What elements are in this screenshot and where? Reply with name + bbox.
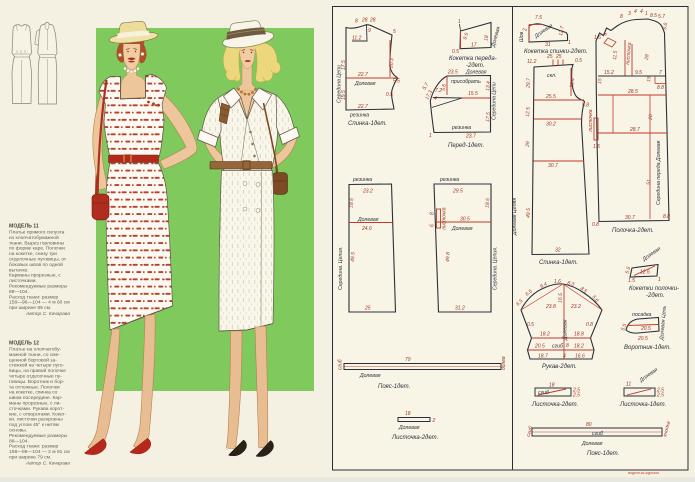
svg-text:Полочка-2дет.: Полочка-2дет.	[612, 228, 654, 234]
svg-text:158—96—104 — 2 м 91 см: 158—96—104 — 2 м 91 см	[9, 449, 70, 455]
svg-text:Долевая: Долевая	[359, 373, 381, 379]
svg-text:Воротник-1дет.: Воротник-1дет.	[624, 345, 671, 351]
svg-text:18.5: 18.5	[349, 198, 356, 208]
svg-text:15: 15	[646, 76, 652, 82]
svg-text:5.8: 5.8	[582, 103, 589, 109]
svg-text:2.5: 2.5	[656, 393, 664, 399]
svg-text:31: 31	[545, 42, 551, 48]
svg-text:28.7: 28.7	[629, 127, 640, 133]
svg-text:49.8: 49.8	[445, 252, 452, 262]
svg-text:Долевая: Долевая	[398, 425, 420, 431]
svg-text:Рекомендуемые размеры: Рекомендуемые размеры	[9, 433, 68, 439]
svg-text:сгиб: сгиб	[538, 390, 550, 396]
svg-text:Середина Цепи: Середина Цепи	[337, 65, 343, 103]
svg-text:сгиб: сгиб	[338, 359, 344, 370]
svg-text:Долевая: Долевая	[354, 81, 376, 87]
svg-text:29.7: 29.7	[525, 78, 532, 89]
svg-text:11.5: 11.5	[612, 50, 619, 60]
svg-text:Листочка-2дет.: Листочка-2дет.	[531, 402, 578, 408]
svg-text:Автор С. Качарава: Автор С. Качарава	[25, 461, 70, 467]
svg-text:51: 51	[646, 179, 652, 185]
svg-text:28.5: 28.5	[627, 89, 638, 95]
svg-text:29.5: 29.5	[452, 189, 463, 195]
svg-text:8.5: 8.5	[650, 13, 657, 19]
svg-text:ки, листочки раскроены: ки, листочки раскроены	[9, 418, 63, 423]
svg-text:скл.: скл.	[547, 73, 556, 79]
svg-text:под углом 45° к нитям: под углом 45° к нитям	[9, 422, 60, 428]
svg-text:5.7: 5.7	[658, 14, 665, 20]
svg-text:1.5: 1.5	[593, 144, 600, 150]
svg-text:четыре отделочные пу-: четыре отделочные пу-	[9, 375, 62, 380]
svg-text:80: 80	[586, 422, 592, 428]
svg-text:8.8: 8.8	[663, 214, 670, 220]
svg-text:стежкой на четыре пуго-: стежкой на четыре пуго-	[9, 362, 65, 369]
svg-text:158—96—104 — 4 м 60 см: 158—96—104 — 4 м 60 см	[9, 300, 70, 306]
svg-text:49.5: 49.5	[350, 252, 357, 262]
svg-text:5.6: 5.6	[662, 22, 669, 30]
svg-text:листочка: листочка	[442, 207, 448, 231]
svg-text:посадка: посадка	[632, 312, 652, 318]
svg-text:Середина. Цепия.: Середина. Цепия.	[338, 247, 344, 290]
svg-text:при ширине 79 см.: при ширине 79 см.	[9, 455, 51, 461]
svg-text:резинка: резинка	[349, 113, 369, 119]
svg-text:49.5: 49.5	[526, 208, 533, 218]
svg-text:Середина переда Долевая: Середина переда Долевая	[656, 140, 662, 205]
svg-text:18.5: 18.5	[485, 198, 492, 208]
svg-text:30.7: 30.7	[548, 163, 558, 169]
svg-text:долев: долев	[501, 356, 507, 370]
svg-text:на кокетке, снизу три: на кокетке, снизу три	[9, 252, 57, 257]
svg-text:7: 7	[659, 70, 662, 76]
svg-text:0.8: 0.8	[592, 222, 599, 228]
svg-text:8: 8	[355, 19, 358, 25]
svg-text:1: 1	[458, 19, 461, 25]
svg-text:при ширине 85 см.: при ширине 85 см.	[9, 305, 51, 311]
svg-text:говицы. Воротник и бор-: говицы. Воротник и бор-	[9, 379, 65, 385]
svg-text:Долевая Цепяя: Долевая Цепяя	[512, 198, 518, 236]
svg-text:1: 1	[645, 11, 648, 17]
svg-text:резинка: резинка	[439, 177, 459, 183]
svg-text:мажной ткани, со сме-: мажной ткани, со сме-	[9, 351, 60, 358]
svg-text:резинка: резинка	[352, 177, 372, 183]
svg-text:0.5: 0.5	[527, 322, 534, 328]
svg-text:88—104.: 88—104.	[9, 438, 29, 444]
svg-text:2: 2	[432, 418, 436, 424]
svg-text:Листочка-2дет.: Листочка-2дет.	[391, 435, 438, 441]
svg-text:20.5: 20.5	[637, 336, 648, 342]
svg-text:24.6: 24.6	[361, 226, 372, 232]
svg-text:4: 4	[434, 96, 437, 102]
svg-text:20: 20	[648, 114, 654, 121]
svg-text:28: 28	[361, 18, 368, 24]
svg-text:8.8: 8.8	[657, 85, 664, 91]
svg-text:30.5: 30.5	[460, 217, 470, 223]
svg-text:Рекомендуемые размеры: Рекомендуемые размеры	[9, 284, 68, 290]
svg-text:9.5: 9.5	[635, 70, 642, 76]
svg-text:Пояс-1дет.: Пояс-1дет.	[587, 451, 619, 457]
svg-text:16.5: 16.5	[558, 293, 565, 303]
svg-text:12.6: 12.6	[640, 270, 650, 276]
svg-text:отделочные пуговицы, от: отделочные пуговицы, от	[9, 258, 67, 263]
svg-text:сточками. Рукава корот-: сточками. Рукава корот-	[9, 406, 64, 412]
svg-text:32: 32	[555, 248, 561, 254]
svg-text:18.2: 18.2	[574, 344, 584, 350]
svg-text:сгиб: сгиб	[552, 344, 564, 350]
svg-text:88—104.: 88—104.	[9, 289, 29, 295]
svg-text:Кокетки полочки-: Кокетки полочки-	[629, 286, 679, 292]
svg-text:18: 18	[484, 35, 490, 41]
svg-text:та отложные. Полочки: та отложные. Полочки	[9, 384, 60, 390]
svg-text:1: 1	[429, 133, 432, 139]
svg-text:Платье на хлопчатобу-: Платье на хлопчатобу-	[9, 347, 62, 353]
svg-text:20.5: 20.5	[534, 344, 545, 350]
svg-text:4: 4	[634, 9, 637, 15]
svg-text:8: 8	[566, 343, 569, 349]
svg-text:1: 1	[658, 277, 661, 283]
svg-text:МОДЕЛЬ 11: МОДЕЛЬ 11	[9, 224, 39, 230]
svg-text:Шов: Шов	[519, 31, 525, 42]
svg-text:23.7: 23.7	[465, 134, 476, 140]
svg-text:18.7: 18.7	[538, 354, 548, 360]
svg-text:Долевая: Долевая	[581, 441, 603, 447]
svg-text:Платье прямого силуэта: Платье прямого силуэта	[9, 230, 65, 236]
svg-text:Спинка-1дет.: Спинка-1дет.	[348, 121, 387, 127]
svg-text:из хлопчатобумажной: из хлопчатобумажной	[9, 234, 59, 241]
svg-text:25.5: 25.5	[545, 94, 556, 100]
svg-text:12.5: 12.5	[525, 107, 532, 117]
svg-text:щенной бортовой за-: щенной бортовой за-	[9, 356, 57, 363]
svg-text:22.7: 22.7	[357, 72, 368, 78]
svg-text:листочка: листочка	[588, 109, 594, 133]
svg-text:Долевая: Долевая	[465, 70, 487, 76]
svg-text:5: 5	[393, 29, 396, 35]
svg-text:Середина Цепи: Середина Цепи	[492, 82, 498, 120]
svg-text:листочками.: листочками.	[9, 279, 37, 284]
svg-text:6: 6	[430, 224, 436, 227]
svg-text:20.5: 20.5	[640, 326, 651, 332]
svg-text:резинка: резинка	[451, 125, 471, 131]
svg-text:18.8: 18.8	[574, 332, 584, 338]
svg-text:1.6: 1.6	[554, 279, 561, 285]
svg-text:ткани. Вырез горловины: ткани. Вырез горловины	[9, 240, 65, 246]
svg-text:0.8: 0.8	[586, 322, 593, 328]
svg-text:Карманы прорезные, с: Карманы прорезные, с	[9, 273, 61, 279]
svg-text:Пояс-1дет.: Пояс-1дет.	[378, 384, 410, 390]
svg-text:2.5: 2.5	[572, 393, 580, 399]
svg-text:8: 8	[430, 212, 436, 215]
svg-text:8: 8	[620, 14, 623, 20]
svg-text:сгиб: сгиб	[592, 431, 604, 437]
svg-text:0.5: 0.5	[386, 92, 393, 98]
svg-text:Долевая: Долевая	[563, 319, 569, 341]
svg-text:Расход ткани: размер: Расход ткани: размер	[9, 294, 59, 300]
svg-text:Расход ткани: размер: Расход ткани: размер	[9, 444, 59, 450]
svg-text:модели-из-журнала: модели-из-журнала	[628, 471, 659, 475]
svg-text:25: 25	[546, 54, 553, 60]
svg-text:31.2: 31.2	[455, 306, 465, 312]
svg-text:вытачке.: вытачке.	[9, 268, 29, 273]
svg-text:22.7: 22.7	[357, 104, 368, 110]
svg-text:23.8: 23.8	[545, 304, 556, 310]
svg-text:23.2: 23.2	[362, 189, 373, 195]
svg-text:присобрать: присобрать	[451, 79, 481, 85]
svg-text:Перед-1дет.: Перед-1дет.	[448, 143, 484, 149]
svg-text:1.6: 1.6	[594, 35, 601, 41]
svg-text:30.2: 30.2	[546, 122, 556, 128]
svg-text:20.3: 20.3	[388, 58, 395, 69]
svg-text:по форме каре. Полочки: по форме каре. Полочки	[9, 246, 65, 252]
svg-text:кие, с отворотами. Кокет-: кие, с отворотами. Кокет-	[9, 411, 67, 417]
svg-text:28: 28	[644, 54, 651, 61]
svg-text:Автор С. Качарава: Автор С. Качарава	[25, 311, 70, 317]
svg-text:30.7: 30.7	[625, 215, 635, 221]
svg-text:23.5: 23.5	[447, 70, 458, 76]
svg-text:29: 29	[525, 141, 531, 148]
svg-text:0.5: 0.5	[575, 58, 582, 64]
svg-text:15.2: 15.2	[604, 70, 614, 76]
svg-text:основы.: основы.	[9, 429, 27, 434]
svg-text:Листочка-1дет.: Листочка-1дет.	[619, 402, 666, 408]
svg-text:5.6: 5.6	[441, 84, 448, 92]
svg-text:18: 18	[405, 411, 411, 417]
svg-text:16.6: 16.6	[575, 354, 585, 360]
svg-text:1: 1	[568, 40, 571, 46]
svg-text:15.5: 15.5	[468, 91, 478, 97]
svg-text:25: 25	[364, 306, 371, 312]
svg-text:11.2: 11.2	[527, 59, 537, 65]
svg-text:15: 15	[597, 78, 603, 84]
svg-text:25: 25	[555, 54, 562, 60]
svg-text:Долевая: Долевая	[451, 226, 473, 232]
svg-text:боковых швов по одной: боковых швов по одной	[9, 261, 63, 268]
svg-text:-2дет.: -2дет.	[466, 63, 485, 69]
svg-text:Середина. Цепия.: Середина. Цепия.	[493, 247, 499, 290]
svg-text:17: 17	[471, 43, 477, 49]
svg-text:11: 11	[626, 382, 631, 388]
svg-text:18.2: 18.2	[540, 332, 550, 338]
svg-text:3: 3	[628, 11, 631, 17]
svg-text:2: 2	[523, 28, 529, 32]
svg-text:28: 28	[369, 18, 376, 24]
svg-text:швом посередине. Кар-: швом посередине. Кар-	[9, 395, 63, 401]
svg-text:на кокетке, спинка со: на кокетке, спинка со	[9, 391, 58, 396]
svg-text:7.5: 7.5	[535, 15, 542, 21]
svg-text:1.5: 1.5	[628, 278, 635, 284]
svg-text:-2дет.: -2дет.	[646, 293, 665, 299]
svg-text:5.5: 5.5	[393, 79, 400, 85]
svg-text:4: 4	[640, 9, 643, 15]
svg-text:Рукав-2дет.: Рукав-2дет.	[542, 364, 577, 370]
svg-text:МОДЕЛЬ 12: МОДЕЛЬ 12	[9, 341, 39, 347]
svg-text:0.5: 0.5	[452, 49, 459, 55]
svg-text:9: 9	[368, 28, 371, 34]
svg-text:4: 4	[563, 354, 566, 360]
svg-text:23.2: 23.2	[570, 304, 581, 310]
svg-text:Долевая: Долевая	[357, 217, 379, 223]
svg-text:11.2: 11.2	[352, 36, 362, 42]
svg-text:79: 79	[405, 357, 411, 363]
svg-text:Кокетка переда-: Кокетка переда-	[449, 56, 497, 62]
svg-text:вицы, на правой полочке: вицы, на правой полочке	[9, 367, 66, 374]
svg-text:маны прорезные, с ли-: маны прорезные, с ли-	[9, 402, 61, 407]
svg-text:Спинка-1дет.: Спинка-1дет.	[539, 260, 578, 266]
